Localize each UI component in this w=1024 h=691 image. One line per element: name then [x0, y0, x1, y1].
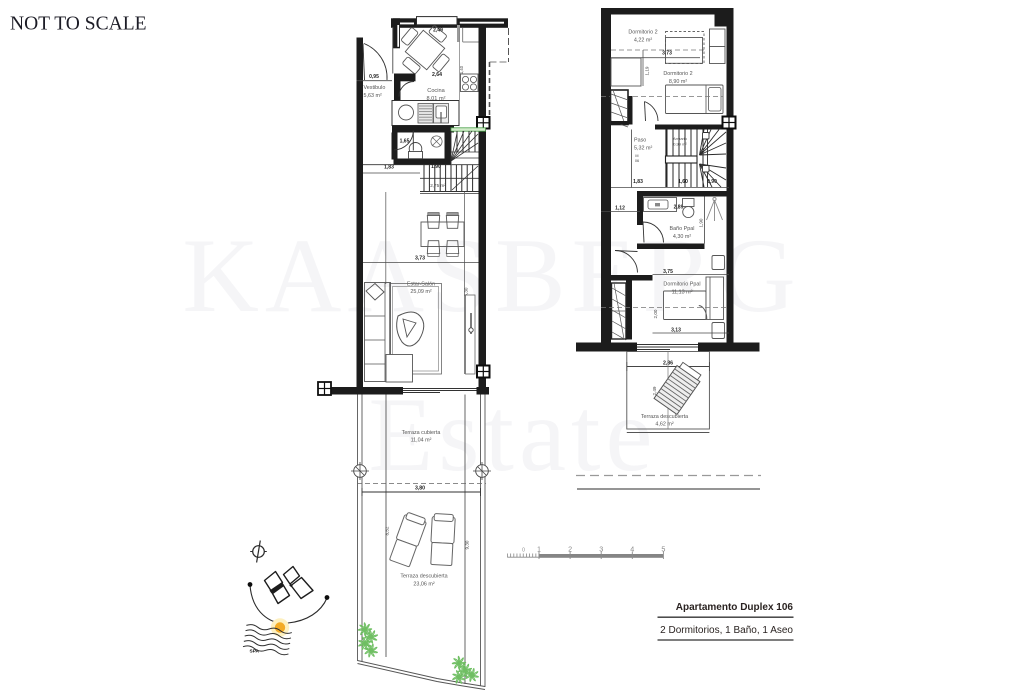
svg-text:Paso: Paso: [634, 138, 646, 144]
svg-text:Vestibulo: Vestibulo: [364, 85, 386, 91]
svg-text:2,00: 2,00: [653, 309, 658, 318]
svg-text:2,49: 2,49: [652, 386, 657, 395]
svg-text:23,06 m²: 23,06 m²: [413, 582, 434, 588]
svg-text:Terraza descubierta: Terraza descubierta: [641, 414, 688, 420]
svg-text:0: 0: [522, 548, 525, 554]
svg-text:NOT TO SCALE: NOT TO SCALE: [10, 14, 147, 35]
svg-text:2 Dormitorios, 1 Baño, 1 Aseo: 2 Dormitorios, 1 Baño, 1 Aseo: [660, 625, 793, 636]
svg-text:1,60: 1,60: [678, 179, 688, 185]
svg-text:1,83: 1,83: [633, 179, 643, 185]
svg-text:1,19: 1,19: [645, 66, 650, 75]
svg-text:8,90 m²: 8,90 m²: [669, 79, 687, 85]
svg-text:Dormitorio 2: Dormitorio 2: [663, 71, 692, 77]
svg-text:3,73: 3,73: [415, 256, 425, 262]
svg-text:Terraza cubierta: Terraza cubierta: [402, 430, 441, 436]
svg-text:Apartamento Duplex 106: Apartamento Duplex 106: [676, 602, 794, 613]
svg-text:Armario: Armario: [673, 136, 688, 141]
svg-text:25,09 m²: 25,09 m²: [410, 289, 431, 295]
svg-text:11,04 m²: 11,04 m²: [411, 438, 432, 444]
svg-text:2,49: 2,49: [433, 28, 443, 34]
svg-text:Dormitorio Ppal: Dormitorio Ppal: [663, 282, 700, 288]
svg-text:3,80: 3,80: [415, 486, 425, 492]
svg-text:Dormitorio 2: Dormitorio 2: [628, 30, 657, 36]
svg-text:1,90: 1,90: [431, 164, 441, 170]
svg-text:8,52: 8,52: [385, 526, 390, 535]
svg-text:1,83: 1,83: [384, 165, 394, 171]
svg-text:M: M: [635, 154, 638, 158]
svg-text:06: 06: [635, 159, 639, 163]
svg-text:1,40: 1,40: [459, 65, 464, 74]
svg-text:9,30: 9,30: [465, 540, 470, 549]
svg-text:2,75 m²: 2,75 m²: [430, 183, 446, 188]
svg-text:1,12: 1,12: [615, 206, 625, 212]
svg-text:5,32 m²: 5,32 m²: [634, 146, 652, 152]
svg-text:0,90: 0,90: [707, 179, 717, 185]
svg-text:11,13 m²: 11,13 m²: [672, 290, 693, 296]
svg-text:2,64: 2,64: [432, 72, 442, 78]
svg-text:4,62 m²: 4,62 m²: [655, 422, 673, 428]
svg-text:Baño Ppal: Baño Ppal: [670, 226, 695, 232]
svg-text:3,73: 3,73: [662, 51, 672, 57]
svg-text:4,22 m²: 4,22 m²: [634, 38, 652, 44]
svg-text:1,90: 1,90: [699, 218, 704, 227]
svg-text:SPA: SPA: [250, 649, 260, 655]
svg-text:4,30 m²: 4,30 m²: [673, 234, 691, 240]
svg-text:0,95: 0,95: [369, 74, 379, 80]
svg-text:Terraza descubierta: Terraza descubierta: [400, 574, 447, 580]
svg-text:Cocina: Cocina: [427, 88, 445, 94]
svg-text:5,63 m²: 5,63 m²: [364, 93, 382, 99]
